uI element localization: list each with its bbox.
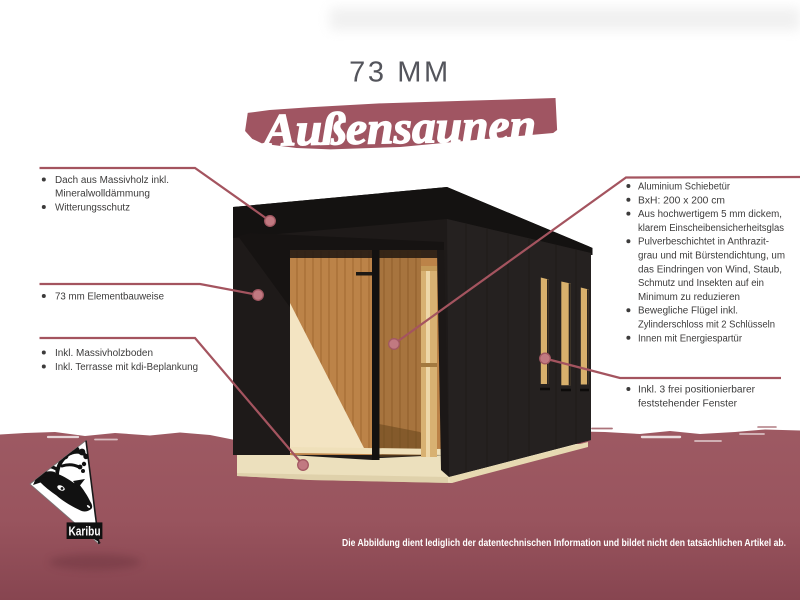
svg-text:Witterungsschutz: Witterungsschutz <box>55 202 130 213</box>
svg-text:grau und mit Bürstendichtung,: grau und mit Bürstendichtung, um <box>638 251 785 262</box>
svg-text:Inkl. 3 frei positionierbarer: Inkl. 3 frei positionierbarer <box>638 385 756 396</box>
svg-text:BxH: 200 x 200 cm: BxH: 200 x 200 cm <box>638 195 725 206</box>
svg-text:Dach aus Massivholz inkl.: Dach aus Massivholz inkl. <box>55 175 169 186</box>
svg-text:das Eindringen von Wind, Staub: das Eindringen von Wind, Staub, <box>638 264 782 275</box>
svg-text:feststehender Fenster: feststehender Fenster <box>638 398 738 409</box>
svg-text:Innen mit Energiespartür: Innen mit Energiespartür <box>638 333 743 344</box>
svg-text:Inkl. Terrasse mit kdi-Beplank: Inkl. Terrasse mit kdi-Beplankung <box>55 362 198 373</box>
svg-text:Minimum zu reduzieren: Minimum zu reduzieren <box>638 292 740 303</box>
svg-text:Aluminium Schiebetür: Aluminium Schiebetür <box>638 182 731 193</box>
svg-text:Karibu: Karibu <box>69 524 101 539</box>
svg-text:Die Abbildung dient lediglich: Die Abbildung dient lediglich der datent… <box>342 538 786 549</box>
svg-text:73 MM: 73 MM <box>349 57 451 89</box>
svg-text:Außensaunen: Außensaunen <box>260 99 536 155</box>
svg-text:Mineralwolldämmung: Mineralwolldämmung <box>55 189 150 200</box>
svg-text:Zylinderschloss mit 2 Schlüsse: Zylinderschloss mit 2 Schlüsseln <box>638 320 775 331</box>
svg-text:klarem Einscheibensicherheitsg: klarem Einscheibensicherheitsglas <box>638 223 784 234</box>
svg-text:Schmutz und Insekten auf ein: Schmutz und Insekten auf ein <box>638 278 764 289</box>
svg-text:Bewegliche Flügel inkl.: Bewegliche Flügel inkl. <box>638 306 738 317</box>
svg-text:Inkl. Massivholzboden: Inkl. Massivholzboden <box>55 348 153 359</box>
svg-text:Pulverbeschichtet in Anthrazit: Pulverbeschichtet in Anthrazit- <box>638 237 769 248</box>
svg-text:Aus hochwertigem 5 mm dickem,: Aus hochwertigem 5 mm dickem, <box>638 209 782 220</box>
svg-text:73 mm Elementbauweise: 73 mm Elementbauweise <box>55 291 165 302</box>
